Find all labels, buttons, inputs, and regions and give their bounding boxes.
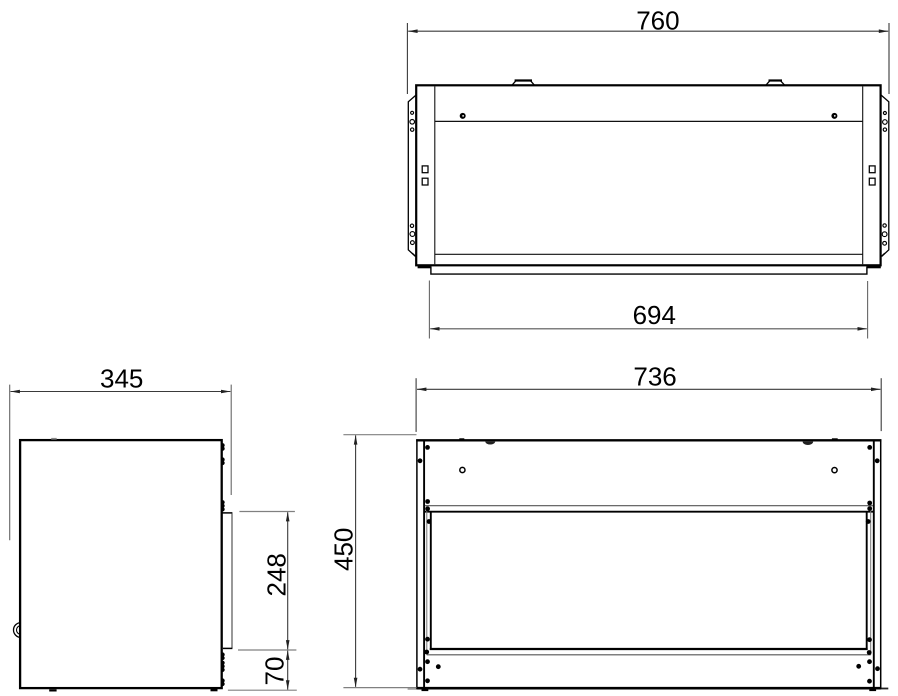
svg-text:694: 694	[633, 300, 676, 330]
svg-text:70: 70	[260, 657, 290, 686]
svg-text:736: 736	[633, 361, 676, 391]
svg-text:450: 450	[328, 528, 358, 571]
svg-text:248: 248	[261, 553, 291, 596]
svg-text:760: 760	[636, 6, 679, 36]
svg-text:345: 345	[100, 363, 143, 393]
